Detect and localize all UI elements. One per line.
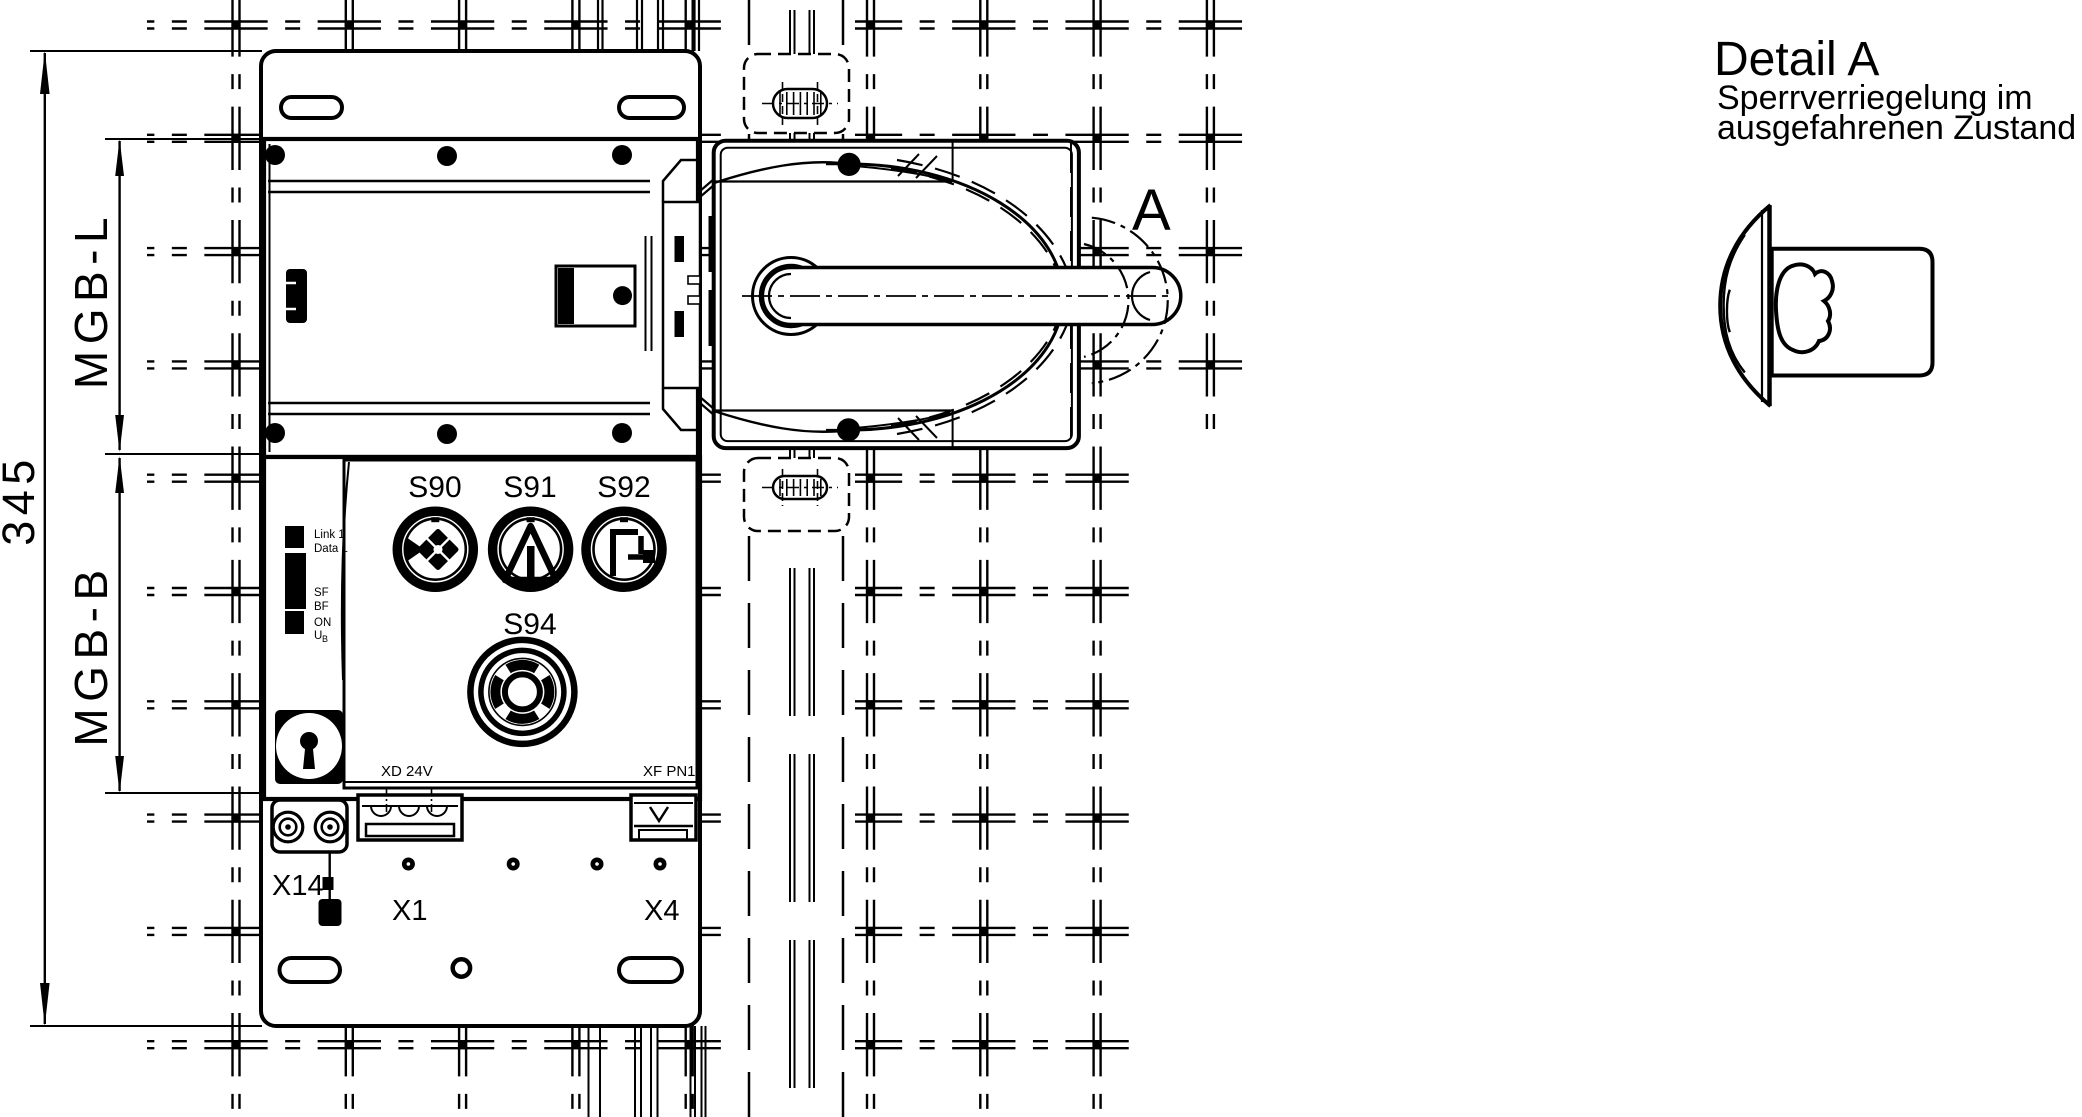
svg-text:ausgefahrenen Zustand: ausgefahrenen Zustand xyxy=(1717,109,2076,147)
svg-text:X14: X14 xyxy=(272,870,324,902)
svg-text:X4: X4 xyxy=(644,895,679,927)
svg-text:SF: SF xyxy=(314,587,329,599)
svg-text:A: A xyxy=(1132,178,1171,243)
svg-text:BF: BF xyxy=(314,601,329,613)
svg-text:S91: S91 xyxy=(503,471,556,504)
svg-text:Data 1: Data 1 xyxy=(314,543,348,555)
svg-text:Link 1: Link 1 xyxy=(314,529,345,541)
svg-text:S92: S92 xyxy=(597,471,650,504)
svg-text:MGB-L: MGB-L xyxy=(65,211,117,389)
svg-text:S94: S94 xyxy=(503,608,556,641)
svg-text:XF PN1: XF PN1 xyxy=(643,763,696,780)
svg-text:X1: X1 xyxy=(392,895,427,927)
svg-text:345: 345 xyxy=(0,454,44,546)
svg-text:S90: S90 xyxy=(408,471,461,504)
svg-text:B: B xyxy=(322,634,328,644)
svg-text:XD 24V: XD 24V xyxy=(381,763,433,780)
svg-text:MGB-B: MGB-B xyxy=(65,563,117,746)
svg-text:ON: ON xyxy=(314,617,331,629)
